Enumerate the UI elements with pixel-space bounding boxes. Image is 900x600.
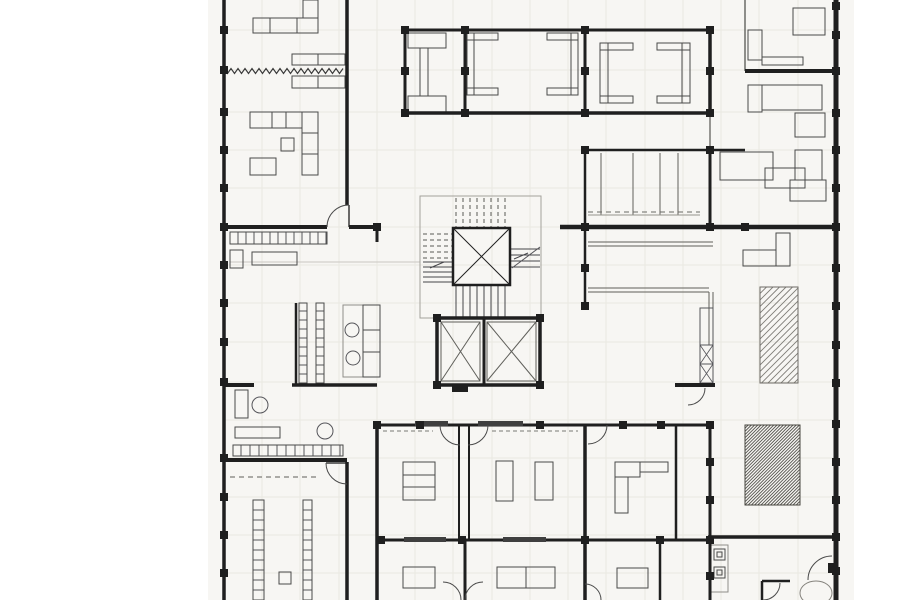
column	[220, 223, 228, 231]
column	[832, 420, 840, 428]
column	[581, 223, 589, 231]
column	[220, 338, 228, 346]
column	[581, 146, 589, 154]
column	[741, 223, 749, 231]
column	[401, 67, 409, 75]
column	[220, 378, 228, 386]
column	[581, 67, 589, 75]
column	[220, 299, 228, 307]
column	[220, 493, 228, 501]
column	[832, 146, 840, 154]
column	[581, 264, 589, 272]
column	[706, 146, 714, 154]
column	[220, 454, 228, 462]
column	[832, 567, 840, 575]
wall-block	[478, 421, 523, 426]
column	[401, 109, 409, 117]
column	[832, 264, 840, 272]
column	[581, 109, 589, 117]
column	[461, 67, 469, 75]
wall-block	[452, 385, 468, 392]
column	[832, 31, 840, 39]
column	[706, 109, 714, 117]
column	[832, 496, 840, 504]
column	[832, 379, 840, 387]
column	[461, 109, 469, 117]
column	[433, 314, 441, 322]
column	[832, 2, 840, 10]
column	[220, 66, 228, 74]
column	[832, 341, 840, 349]
wall-block	[503, 537, 546, 542]
column	[657, 421, 665, 429]
column	[536, 381, 544, 389]
column	[832, 533, 840, 541]
column	[706, 67, 714, 75]
column	[832, 184, 840, 192]
column	[581, 302, 589, 310]
column	[416, 421, 424, 429]
column	[656, 536, 664, 544]
column	[220, 26, 228, 34]
floor-plan-svg	[0, 0, 900, 600]
column	[220, 184, 228, 192]
column	[220, 261, 228, 269]
column	[706, 223, 714, 231]
column	[619, 421, 627, 429]
column	[832, 458, 840, 466]
column	[401, 26, 409, 34]
column	[706, 536, 714, 544]
wall-block	[404, 537, 446, 542]
column	[832, 302, 840, 310]
column	[832, 223, 840, 231]
column	[220, 569, 228, 577]
column	[581, 26, 589, 34]
column	[458, 536, 466, 544]
column	[377, 536, 385, 544]
column	[706, 572, 714, 580]
column	[220, 146, 228, 154]
column	[832, 67, 840, 75]
column	[433, 381, 441, 389]
column	[220, 531, 228, 539]
column	[832, 109, 840, 117]
column	[706, 26, 714, 34]
column	[706, 496, 714, 504]
column	[581, 536, 589, 544]
column	[536, 421, 544, 429]
column	[706, 458, 714, 466]
column	[461, 26, 469, 34]
column	[536, 314, 544, 322]
column	[706, 421, 714, 429]
column	[220, 108, 228, 116]
column	[373, 421, 381, 429]
column	[373, 223, 381, 231]
floor-plan-page	[0, 0, 900, 600]
